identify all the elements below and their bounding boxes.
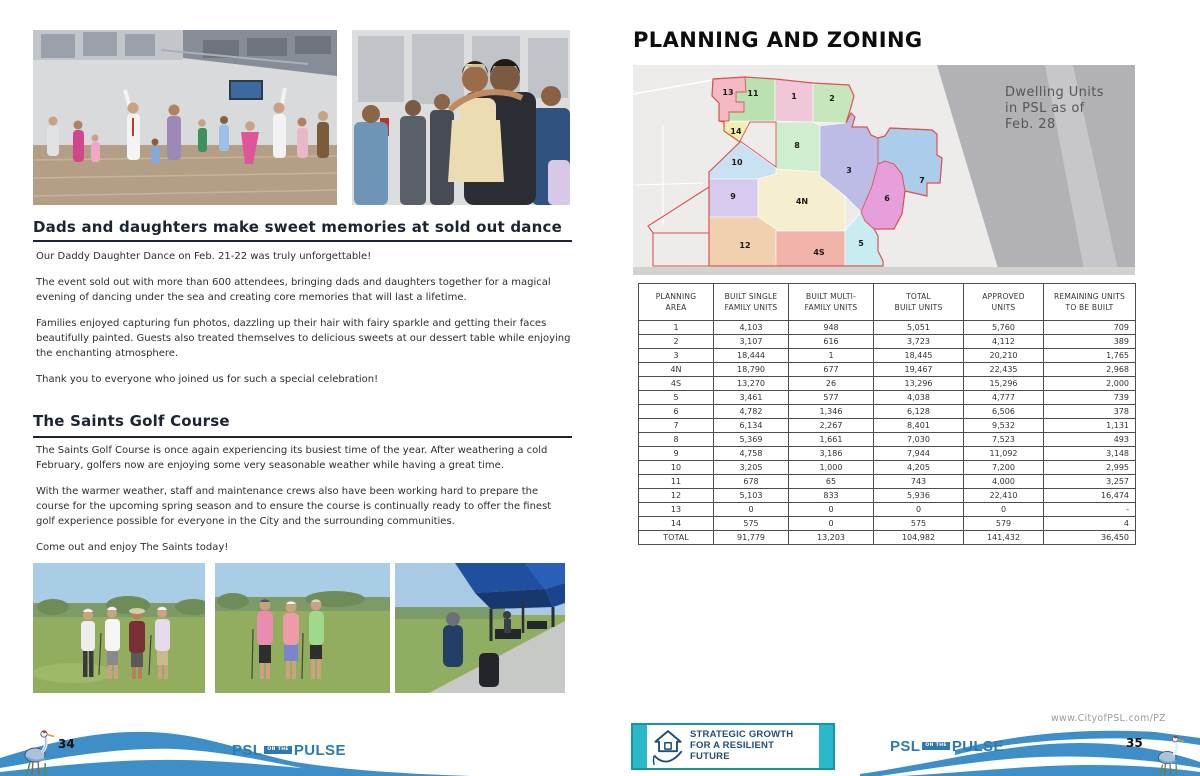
table-row: 85,3691,6617,0307,523493 bbox=[639, 433, 1136, 447]
table-cell: 4,000 bbox=[964, 475, 1044, 489]
photo-driving-range bbox=[395, 563, 565, 693]
table-cell: 2,968 bbox=[1044, 363, 1136, 377]
table-cell: 493 bbox=[1044, 433, 1136, 447]
table-cell: 8 bbox=[639, 433, 714, 447]
table-cell: 14 bbox=[639, 517, 714, 531]
table-row: 130000- bbox=[639, 503, 1136, 517]
table-cell: 575 bbox=[874, 517, 964, 531]
table-cell: 19,467 bbox=[874, 363, 964, 377]
table-cell: 13,296 bbox=[874, 377, 964, 391]
table-cell: 3 bbox=[639, 349, 714, 363]
table-cell: 4 bbox=[1044, 517, 1136, 531]
table-cell: 0 bbox=[874, 503, 964, 517]
table-cell: 948 bbox=[789, 321, 874, 335]
table-cell: 0 bbox=[789, 517, 874, 531]
table-cell: 4S bbox=[639, 377, 714, 391]
table-cell: 4N bbox=[639, 363, 714, 377]
table-row: 64,7821,3466,1286,506378 bbox=[639, 405, 1136, 419]
table-cell: 65 bbox=[789, 475, 874, 489]
logo-psl-text: PSL bbox=[890, 738, 920, 755]
table-cell: 141,432 bbox=[964, 531, 1044, 545]
table-cell: 1,765 bbox=[1044, 349, 1136, 363]
table-cell: 4,038 bbox=[874, 391, 964, 405]
table-cell: 7 bbox=[639, 419, 714, 433]
table-cell: 0 bbox=[714, 503, 789, 517]
table-cell: 378 bbox=[1044, 405, 1136, 419]
table-cell: 2,995 bbox=[1044, 461, 1136, 475]
page-number-right: 35 bbox=[1126, 736, 1143, 750]
dwelling-table-body: 14,1039485,0515,76070923,1076163,7234,11… bbox=[639, 321, 1136, 545]
table-row: 125,1038335,93622,41016,474 bbox=[639, 489, 1136, 503]
table-cell: 577 bbox=[789, 391, 874, 405]
table-cell: 575 bbox=[714, 517, 789, 531]
table-cell: 2,267 bbox=[789, 419, 874, 433]
page-title-planning-zoning: PLANNING AND ZONING bbox=[633, 28, 923, 52]
dwelling-table: PLANNING AREABUILT SINGLE FAMILY UNITSBU… bbox=[638, 283, 1136, 545]
photo-daddy-daughter-dance-floor bbox=[33, 30, 337, 205]
table-row: 11678657434,0003,257 bbox=[639, 475, 1136, 489]
map-area-label-14: 14 bbox=[730, 127, 742, 136]
newsletter-spread: Dads and daughters make sweet memories a… bbox=[0, 0, 1200, 776]
dwelling-units-map: Dwelling Units in PSL as of Feb. 28 1112… bbox=[633, 65, 1135, 275]
psl-pulse-logo-right: PSL ON THE PULSE bbox=[890, 738, 1004, 754]
table-cell: 677 bbox=[789, 363, 874, 377]
table-cell: 3,205 bbox=[714, 461, 789, 475]
table-header-cell: PLANNING AREA bbox=[639, 284, 714, 321]
table-cell: - bbox=[1044, 503, 1136, 517]
map-area-label-7: 7 bbox=[919, 176, 925, 185]
table-row: 103,2051,0004,2057,2002,995 bbox=[639, 461, 1136, 475]
table-cell: 5,936 bbox=[874, 489, 964, 503]
table-cell: 18,444 bbox=[714, 349, 789, 363]
strategic-growth-badge: STRATEGIC GROWTH FOR A RESILIENT FUTURE bbox=[631, 723, 835, 770]
table-cell: 18,445 bbox=[874, 349, 964, 363]
table-cell: 9 bbox=[639, 447, 714, 461]
table-cell: 4,103 bbox=[714, 321, 789, 335]
table-cell: 6,128 bbox=[874, 405, 964, 419]
table-cell: 7,523 bbox=[964, 433, 1044, 447]
table-row: 318,444118,44520,2101,765 bbox=[639, 349, 1136, 363]
table-cell: 2 bbox=[639, 335, 714, 349]
table-cell: 739 bbox=[1044, 391, 1136, 405]
table-cell: 1,346 bbox=[789, 405, 874, 419]
table-header-cell: BUILT SINGLE FAMILY UNITS bbox=[714, 284, 789, 321]
map-area-label-3: 3 bbox=[846, 166, 852, 175]
paragraph: Families enjoyed capturing fun photos, d… bbox=[36, 316, 572, 361]
table-cell: 4,112 bbox=[964, 335, 1044, 349]
map-area-label-9: 9 bbox=[730, 192, 736, 201]
map-area-label-4N: 4N bbox=[796, 197, 808, 206]
table-cell: 4,205 bbox=[874, 461, 964, 475]
table-cell: 3,257 bbox=[1044, 475, 1136, 489]
map-area-label-13: 13 bbox=[722, 88, 733, 97]
section-title-golf: The Saints Golf Course bbox=[33, 412, 572, 430]
map-area-label-1: 1 bbox=[791, 92, 797, 101]
table-cell: 3,148 bbox=[1044, 447, 1136, 461]
table-cell: 4,782 bbox=[714, 405, 789, 419]
table-cell: 8,401 bbox=[874, 419, 964, 433]
map-area-label-12: 12 bbox=[739, 241, 750, 250]
table-cell: 833 bbox=[789, 489, 874, 503]
table-cell: 22,410 bbox=[964, 489, 1044, 503]
rule-dance bbox=[33, 240, 572, 242]
table-cell: 1 bbox=[789, 349, 874, 363]
paragraph: The Saints Golf Course is once again exp… bbox=[36, 443, 572, 473]
table-cell: 1,000 bbox=[789, 461, 874, 475]
table-cell: 9,532 bbox=[964, 419, 1044, 433]
house-in-hand-icon bbox=[651, 728, 685, 766]
logo-pulse-text: PULSE bbox=[294, 742, 346, 759]
table-cell: 13,270 bbox=[714, 377, 789, 391]
table-cell: 1,131 bbox=[1044, 419, 1136, 433]
table-row: 1457505755794 bbox=[639, 517, 1136, 531]
photo-dad-kissing-daughter bbox=[352, 30, 570, 205]
table-row: 23,1076163,7234,112389 bbox=[639, 335, 1136, 349]
paragraph: The event sold out with more than 600 at… bbox=[36, 275, 572, 305]
table-cell: 5,369 bbox=[714, 433, 789, 447]
table-cell: 3,461 bbox=[714, 391, 789, 405]
photo-golfers-women bbox=[215, 563, 390, 693]
table-cell: 1,661 bbox=[789, 433, 874, 447]
logo-pulse-text: PULSE bbox=[952, 738, 1004, 755]
table-cell: 12 bbox=[639, 489, 714, 503]
map-caption-line: in PSL as of bbox=[1005, 101, 1085, 116]
dance-paragraphs: Our Daddy Daughter Dance on Feb. 21-22 w… bbox=[36, 249, 572, 398]
crane-bird-logo bbox=[20, 727, 54, 776]
table-cell: 18,790 bbox=[714, 363, 789, 377]
table-cell: 6,134 bbox=[714, 419, 789, 433]
page-number-left: 34 bbox=[58, 737, 75, 751]
table-cell: 4,777 bbox=[964, 391, 1044, 405]
table-cell: 678 bbox=[714, 475, 789, 489]
table-cell: 13,203 bbox=[789, 531, 874, 545]
table-cell: 5,103 bbox=[714, 489, 789, 503]
table-header-cell: APPROVED UNITS bbox=[964, 284, 1044, 321]
map-area-4S bbox=[776, 231, 845, 266]
table-cell: 3,723 bbox=[874, 335, 964, 349]
table-cell: 26 bbox=[789, 377, 874, 391]
table-cell: 11 bbox=[639, 475, 714, 489]
table-cell: 16,474 bbox=[1044, 489, 1136, 503]
map-area-label-10: 10 bbox=[731, 158, 743, 167]
logo-on-the-text: ON THE bbox=[264, 746, 291, 755]
paragraph: With the warmer weather, staff and maint… bbox=[36, 484, 572, 529]
table-cell: 1 bbox=[639, 321, 714, 335]
table-cell: 36,450 bbox=[1044, 531, 1136, 545]
paragraph: Come out and enjoy The Saints today! bbox=[36, 540, 572, 555]
table-cell: 6 bbox=[639, 405, 714, 419]
map-caption-line: Feb. 28 bbox=[1005, 117, 1056, 132]
map-area-label-11: 11 bbox=[747, 89, 759, 98]
table-row: 4N18,79067719,46722,4352,968 bbox=[639, 363, 1136, 377]
table-total-row: TOTAL91,77913,203104,982141,43236,450 bbox=[639, 531, 1136, 545]
section-title-dance: Dads and daughters make sweet memories a… bbox=[33, 218, 572, 236]
table-cell: 709 bbox=[1044, 321, 1136, 335]
map-area-label-2: 2 bbox=[829, 94, 835, 103]
logo-on-the-text: ON THE bbox=[922, 742, 949, 751]
psl-pulse-logo-left: PSL ON THE PULSE bbox=[232, 742, 346, 758]
map-area-label-8: 8 bbox=[794, 141, 800, 150]
map-area-label-6: 6 bbox=[884, 194, 890, 203]
table-row: 94,7583,1867,94411,0923,148 bbox=[639, 447, 1136, 461]
table-cell: 7,200 bbox=[964, 461, 1044, 475]
table-cell: 2,000 bbox=[1044, 377, 1136, 391]
table-cell: 20,210 bbox=[964, 349, 1044, 363]
table-cell: 4,758 bbox=[714, 447, 789, 461]
table-cell: 3,186 bbox=[789, 447, 874, 461]
table-cell: 5,051 bbox=[874, 321, 964, 335]
table-cell: 7,030 bbox=[874, 433, 964, 447]
logo-psl-text: PSL bbox=[232, 742, 262, 759]
table-row: 76,1342,2678,4019,5321,131 bbox=[639, 419, 1136, 433]
table-header-cell: TOTAL BUILT UNITS bbox=[874, 284, 964, 321]
table-cell: 91,779 bbox=[714, 531, 789, 545]
table-header-cell: REMAINING UNITS TO BE BUILT bbox=[1044, 284, 1136, 321]
badge-line: FUTURE bbox=[690, 752, 793, 763]
golf-paragraphs: The Saints Golf Course is once again exp… bbox=[36, 443, 572, 566]
map-caption-line: Dwelling Units bbox=[1005, 85, 1104, 100]
table-cell: 616 bbox=[789, 335, 874, 349]
table-cell: 104,982 bbox=[874, 531, 964, 545]
table-cell: 22,435 bbox=[964, 363, 1044, 377]
table-row: 4S13,2702613,29615,2962,000 bbox=[639, 377, 1136, 391]
table-cell: 579 bbox=[964, 517, 1044, 531]
table-cell: TOTAL bbox=[639, 531, 714, 545]
table-cell: 15,296 bbox=[964, 377, 1044, 391]
table-cell: 7,944 bbox=[874, 447, 964, 461]
badge-teal-bar-right bbox=[819, 725, 833, 768]
paragraph: Thank you to everyone who joined us for … bbox=[36, 372, 572, 387]
table-cell: 6,506 bbox=[964, 405, 1044, 419]
table-header-cell: BUILT MULTI- FAMILY UNITS bbox=[789, 284, 874, 321]
table-cell: 11,092 bbox=[964, 447, 1044, 461]
table-row: 53,4615774,0384,777739 bbox=[639, 391, 1136, 405]
badge-teal-bar-left bbox=[633, 725, 647, 768]
table-cell: 5 bbox=[639, 391, 714, 405]
crane-bird-logo bbox=[1152, 733, 1186, 776]
table-header-row: PLANNING AREABUILT SINGLE FAMILY UNITSBU… bbox=[639, 284, 1136, 321]
photo-golfers-men bbox=[33, 563, 205, 693]
table-cell: 13 bbox=[639, 503, 714, 517]
paragraph: Our Daddy Daughter Dance on Feb. 21-22 w… bbox=[36, 249, 572, 264]
table-cell: 743 bbox=[874, 475, 964, 489]
map-area-label-5: 5 bbox=[858, 239, 864, 248]
rule-golf bbox=[33, 436, 572, 438]
table-cell: 3,107 bbox=[714, 335, 789, 349]
table-cell: 0 bbox=[789, 503, 874, 517]
table-cell: 10 bbox=[639, 461, 714, 475]
dwelling-table-head: PLANNING AREABUILT SINGLE FAMILY UNITSBU… bbox=[639, 284, 1136, 321]
map-area-label-4S: 4S bbox=[813, 248, 825, 257]
table-row: 14,1039485,0515,760709 bbox=[639, 321, 1136, 335]
table-cell: 5,760 bbox=[964, 321, 1044, 335]
table-cell: 389 bbox=[1044, 335, 1136, 349]
table-cell: 0 bbox=[964, 503, 1044, 517]
